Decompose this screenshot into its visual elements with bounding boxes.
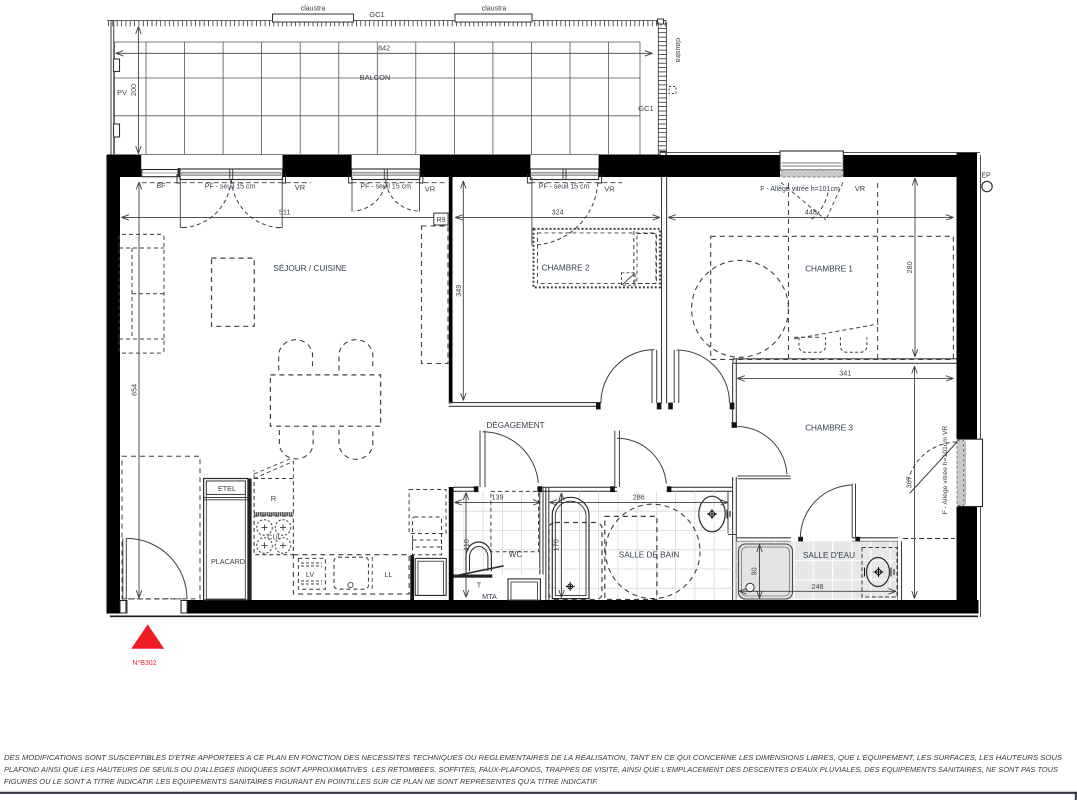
svg-text:BALCON: BALCON <box>360 73 391 82</box>
svg-text:∵: ∵ <box>417 529 421 535</box>
svg-text:MTA: MTA <box>482 592 497 601</box>
svg-text:VR: VR <box>604 185 615 194</box>
svg-text:DES MODIFICATIONS SONT SUSCEPT: DES MODIFICATIONS SONT SUSCEPTIBLES D'ET… <box>4 753 1062 762</box>
svg-text:LL: LL <box>385 570 393 579</box>
svg-text:654: 654 <box>130 384 139 396</box>
svg-text:VR: VR <box>425 185 436 194</box>
svg-text:R9: R9 <box>437 217 446 224</box>
svg-text:claustra: claustra <box>482 6 507 13</box>
svg-text:DÉGAGEMENT: DÉGAGEMENT <box>486 420 544 430</box>
svg-text:349: 349 <box>454 285 463 297</box>
svg-text:PF - seuil 15 cm: PF - seuil 15 cm <box>360 184 411 191</box>
svg-text:GC1: GC1 <box>369 10 384 19</box>
svg-text:341: 341 <box>839 369 851 378</box>
svg-text:VR: VR <box>855 184 866 193</box>
svg-text:200: 200 <box>129 84 138 96</box>
svg-text:SALLE D'EAU: SALLE D'EAU <box>803 551 855 560</box>
svg-text:PF - seuil 15 cm: PF - seuil 15 cm <box>539 184 590 191</box>
svg-text:PLACARD: PLACARD <box>211 557 245 566</box>
svg-text:BF: BF <box>157 183 166 190</box>
svg-text:324: 324 <box>552 208 564 217</box>
svg-text:139: 139 <box>492 493 504 502</box>
svg-text:F - Allège vitrée h=101cm: F - Allège vitrée h=101cm <box>760 186 840 193</box>
svg-text:511: 511 <box>279 208 290 217</box>
svg-text:CUI: CUI <box>267 533 279 542</box>
svg-text:R: R <box>271 494 277 503</box>
svg-text:SÉJOUR / CUISINE: SÉJOUR / CUISINE <box>273 263 347 273</box>
svg-text:110: 110 <box>462 539 471 550</box>
svg-text:N°B302: N°B302 <box>132 659 156 667</box>
svg-text:CHAMBRE 3: CHAMBRE 3 <box>805 424 853 433</box>
svg-text:ETEL: ETEL <box>218 484 236 493</box>
svg-text:286: 286 <box>633 493 645 502</box>
svg-text:170: 170 <box>552 539 561 551</box>
svg-text:GC1: GC1 <box>638 104 653 113</box>
svg-text:F - Allège vitrée h=101cm VR: F - Allège vitrée h=101cm VR <box>942 426 949 515</box>
svg-text:LV: LV <box>306 570 314 579</box>
svg-text:claustra: claustra <box>674 38 681 63</box>
svg-text:EP: EP <box>981 173 991 180</box>
svg-text:842: 842 <box>378 43 390 52</box>
svg-text:PV: PV <box>117 88 127 97</box>
svg-text:248: 248 <box>812 582 824 591</box>
svg-text:367: 367 <box>905 476 914 488</box>
svg-text:90: 90 <box>750 567 759 575</box>
svg-text:PLAFOND AINSI QUE LES HAUTEURS: PLAFOND AINSI QUE LES HAUTEURS DE SEUILS… <box>4 765 1058 774</box>
svg-text:VR: VR <box>295 183 306 192</box>
svg-text:448: 448 <box>805 208 817 217</box>
svg-text:CHAMBRE 1: CHAMBRE 1 <box>805 265 853 274</box>
svg-text:T: T <box>477 581 482 590</box>
svg-text:PF - seuil 15 cm: PF - seuil 15 cm <box>205 184 256 191</box>
svg-text:SALLE DE BAIN: SALLE DE BAIN <box>619 551 680 560</box>
svg-text:claustra: claustra <box>301 6 326 13</box>
svg-text:280: 280 <box>905 261 914 273</box>
svg-text:FIGURES OU LE SONT A TITRE IND: FIGURES OU LE SONT A TITRE INDICATIF. LE… <box>4 777 598 786</box>
svg-text:CHAMBRE 2: CHAMBRE 2 <box>542 264 590 273</box>
